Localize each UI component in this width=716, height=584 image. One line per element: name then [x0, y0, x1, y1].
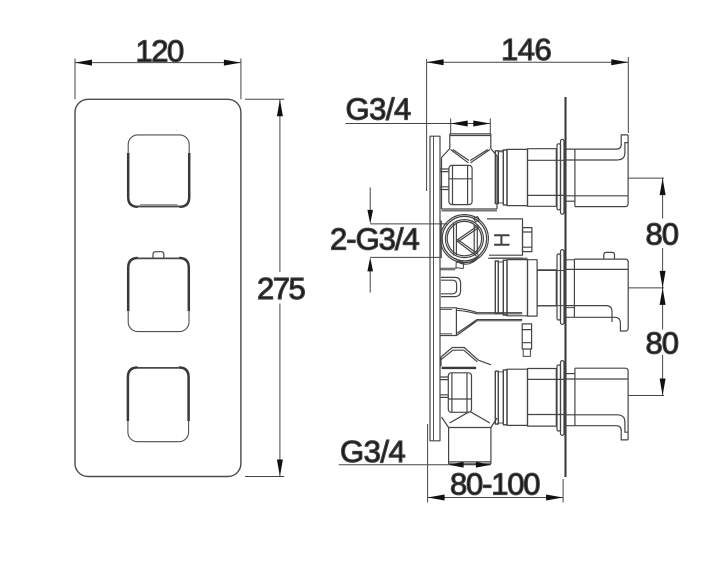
svg-text:2-G3/4: 2-G3/4: [330, 222, 420, 257]
svg-text:120: 120: [136, 34, 184, 69]
svg-text:146: 146: [501, 32, 551, 67]
svg-text:G3/4: G3/4: [340, 434, 405, 469]
svg-text:80: 80: [646, 326, 679, 361]
svg-text:80: 80: [646, 217, 679, 252]
svg-text:275: 275: [257, 271, 304, 306]
svg-text:80-100: 80-100: [450, 467, 540, 502]
svg-text:G3/4: G3/4: [346, 92, 411, 127]
